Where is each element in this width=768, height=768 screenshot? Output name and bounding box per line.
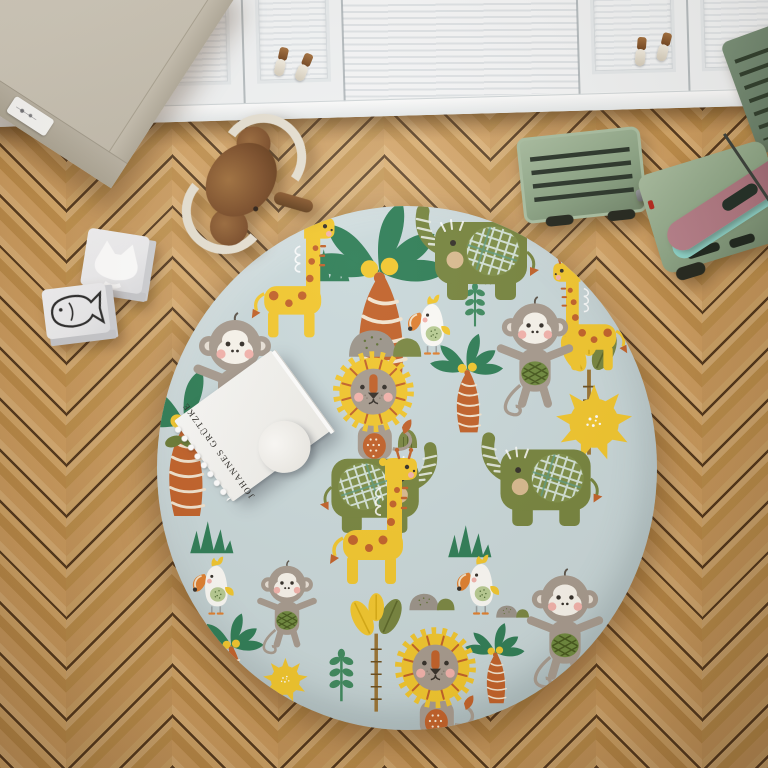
- rug-sprig: [328, 649, 354, 702]
- rug-palm-bottom-left: [198, 613, 264, 702]
- truck-trailer: [516, 126, 648, 224]
- rug-leaves: [159, 328, 186, 341]
- rug-grass: [448, 525, 491, 557]
- rug-stones: [349, 330, 421, 356]
- truck-window: [728, 233, 755, 249]
- closet-door: [576, 0, 690, 93]
- fish-drawing: [41, 282, 111, 339]
- closet-door: [241, 0, 345, 102]
- toy-block-fish: [41, 282, 111, 339]
- rug-elephant: [417, 210, 539, 300]
- rug-grass: [190, 521, 233, 553]
- rug-paddle-palm: [346, 593, 407, 712]
- rug-sun: [263, 658, 309, 703]
- playroom-photo: JOHANNES GRÜTZKE: [0, 0, 768, 768]
- closet-door: [341, 0, 580, 99]
- rug-stones: [409, 594, 454, 611]
- rug-cockatoo: [457, 555, 499, 614]
- rug-paddle-palm: [601, 617, 657, 726]
- truck-taillight: [647, 200, 654, 210]
- rug-monkey: [531, 569, 599, 687]
- rug-monkey: [501, 297, 569, 415]
- rug-lion: [399, 631, 474, 730]
- rug-monkey: [260, 561, 313, 653]
- rug-cockatoo: [193, 557, 234, 614]
- rug-stones: [496, 606, 529, 618]
- rug-palm-center: [430, 334, 503, 433]
- toy-trunk: [272, 191, 314, 215]
